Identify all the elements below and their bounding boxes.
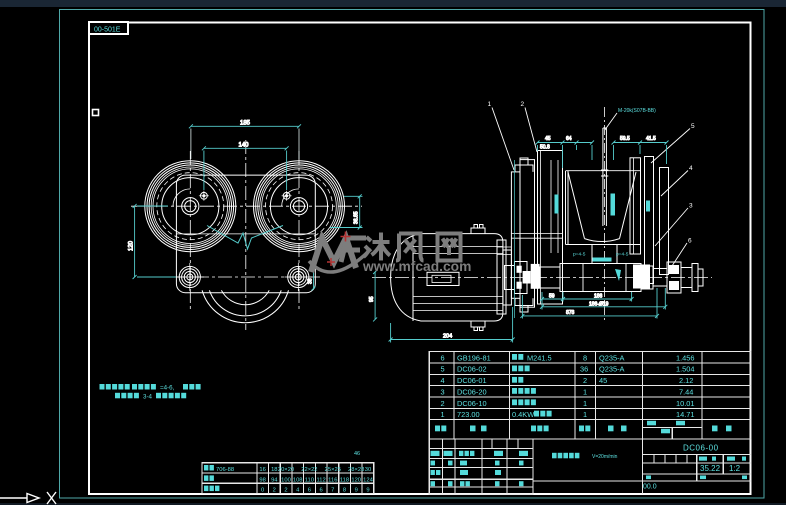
- svg-text:M241.5: M241.5: [527, 353, 552, 362]
- svg-text:DC06-02: DC06-02: [457, 365, 487, 374]
- svg-text:98: 98: [259, 477, 265, 483]
- svg-text:DC06-01: DC06-01: [457, 376, 487, 385]
- svg-text:25×25: 25×25: [325, 467, 341, 473]
- svg-text:V=20m/min: V=20m/min: [592, 454, 618, 460]
- svg-text:1: 1: [583, 410, 587, 419]
- svg-text:2: 2: [284, 488, 287, 494]
- svg-text:20×20: 20×20: [278, 467, 294, 473]
- svg-text:Q235-A: Q235-A: [599, 353, 625, 362]
- svg-text:DC06-00: DC06-00: [683, 444, 719, 453]
- svg-text:1.504: 1.504: [676, 365, 695, 374]
- svg-text:7: 7: [331, 488, 334, 494]
- svg-text:140: 140: [239, 143, 250, 149]
- svg-text:120: 120: [351, 477, 361, 483]
- svg-text:Q235-A: Q235-A: [599, 365, 625, 374]
- svg-text:2: 2: [441, 399, 445, 408]
- svg-text:4: 4: [441, 376, 445, 385]
- svg-text:185: 185: [240, 121, 251, 127]
- svg-text:2: 2: [521, 101, 525, 108]
- svg-text:59.5: 59.5: [620, 136, 630, 142]
- svg-text:45: 45: [599, 376, 607, 385]
- svg-text:2.12: 2.12: [679, 376, 693, 385]
- svg-text:2: 2: [273, 488, 276, 494]
- svg-text:8: 8: [343, 488, 346, 494]
- svg-text:3: 3: [689, 203, 693, 210]
- svg-text:www.mfcad.com: www.mfcad.com: [362, 259, 471, 274]
- svg-text:9: 9: [366, 488, 369, 494]
- svg-text:706-88: 706-88: [216, 467, 234, 473]
- svg-text:1: 1: [441, 410, 445, 419]
- svg-text:45: 45: [545, 136, 551, 142]
- svg-text:1: 1: [488, 101, 492, 108]
- svg-text:108: 108: [293, 477, 303, 483]
- svg-text:DC06-20: DC06-20: [457, 387, 487, 396]
- svg-text:8: 8: [583, 353, 587, 362]
- svg-text:6: 6: [688, 238, 692, 245]
- svg-text:p=4-5: p=4-5: [616, 252, 629, 258]
- svg-text:116: 116: [328, 477, 337, 483]
- svg-text:204: 204: [443, 334, 452, 340]
- svg-text:1.456: 1.456: [676, 353, 695, 362]
- svg-text:5: 5: [691, 123, 695, 130]
- svg-text:1:2: 1:2: [729, 464, 741, 473]
- svg-text:50.8: 50.8: [540, 145, 550, 151]
- svg-text:94: 94: [271, 477, 278, 483]
- svg-text:=4-6,: =4-6,: [160, 385, 175, 392]
- svg-text:64: 64: [566, 136, 572, 142]
- svg-text:118: 118: [340, 477, 349, 483]
- svg-text:6: 6: [319, 488, 322, 494]
- svg-text:6: 6: [308, 488, 311, 494]
- svg-text:2: 2: [583, 376, 587, 385]
- svg-text:36: 36: [580, 365, 588, 374]
- svg-text:22×22: 22×22: [301, 467, 317, 473]
- svg-text:878: 878: [566, 310, 575, 316]
- svg-text:100: 100: [281, 477, 291, 483]
- svg-text:35.22: 35.22: [700, 464, 721, 473]
- svg-text:5: 5: [441, 365, 445, 374]
- svg-text:00.0: 00.0: [643, 484, 657, 491]
- svg-text:723.00: 723.00: [457, 410, 480, 419]
- svg-text:3-4: 3-4: [143, 393, 153, 400]
- svg-text:124: 124: [363, 477, 373, 483]
- svg-text:4: 4: [689, 165, 693, 172]
- svg-text:112: 112: [316, 477, 325, 483]
- svg-text:120: 120: [129, 240, 135, 251]
- svg-text:30: 30: [365, 467, 371, 473]
- svg-text:28×28: 28×28: [348, 467, 364, 473]
- svg-text:9: 9: [355, 488, 358, 494]
- svg-text:10.01: 10.01: [676, 399, 695, 408]
- svg-text:M-20k(S07B-BB): M-20k(S07B-BB): [618, 108, 656, 114]
- svg-text:0.4KW: 0.4KW: [512, 410, 534, 419]
- svg-text:DC06-10: DC06-10: [457, 399, 487, 408]
- svg-text:41.5: 41.5: [646, 136, 656, 142]
- svg-text:46: 46: [354, 451, 360, 457]
- svg-text:p=4-5: p=4-5: [573, 252, 586, 258]
- svg-text:18: 18: [271, 467, 277, 473]
- svg-text:6: 6: [441, 353, 445, 362]
- svg-text:7.44: 7.44: [679, 387, 693, 396]
- svg-text:186-Ø19: 186-Ø19: [589, 301, 609, 307]
- svg-text:59: 59: [549, 294, 555, 300]
- svg-text:110: 110: [305, 477, 314, 483]
- svg-text:1: 1: [583, 387, 587, 396]
- svg-text:36.85: 36.85: [353, 211, 359, 224]
- svg-text:GB196-81: GB196-81: [457, 353, 491, 362]
- svg-text:38: 38: [308, 278, 314, 284]
- svg-text:00-501E: 00-501E: [94, 27, 121, 34]
- svg-text:14.71: 14.71: [676, 410, 695, 419]
- svg-text:0: 0: [261, 488, 264, 494]
- svg-text:186: 186: [594, 294, 603, 300]
- svg-text:16: 16: [259, 467, 265, 473]
- svg-text:1: 1: [583, 399, 587, 408]
- svg-text:95: 95: [369, 296, 375, 302]
- svg-text:3: 3: [441, 387, 445, 396]
